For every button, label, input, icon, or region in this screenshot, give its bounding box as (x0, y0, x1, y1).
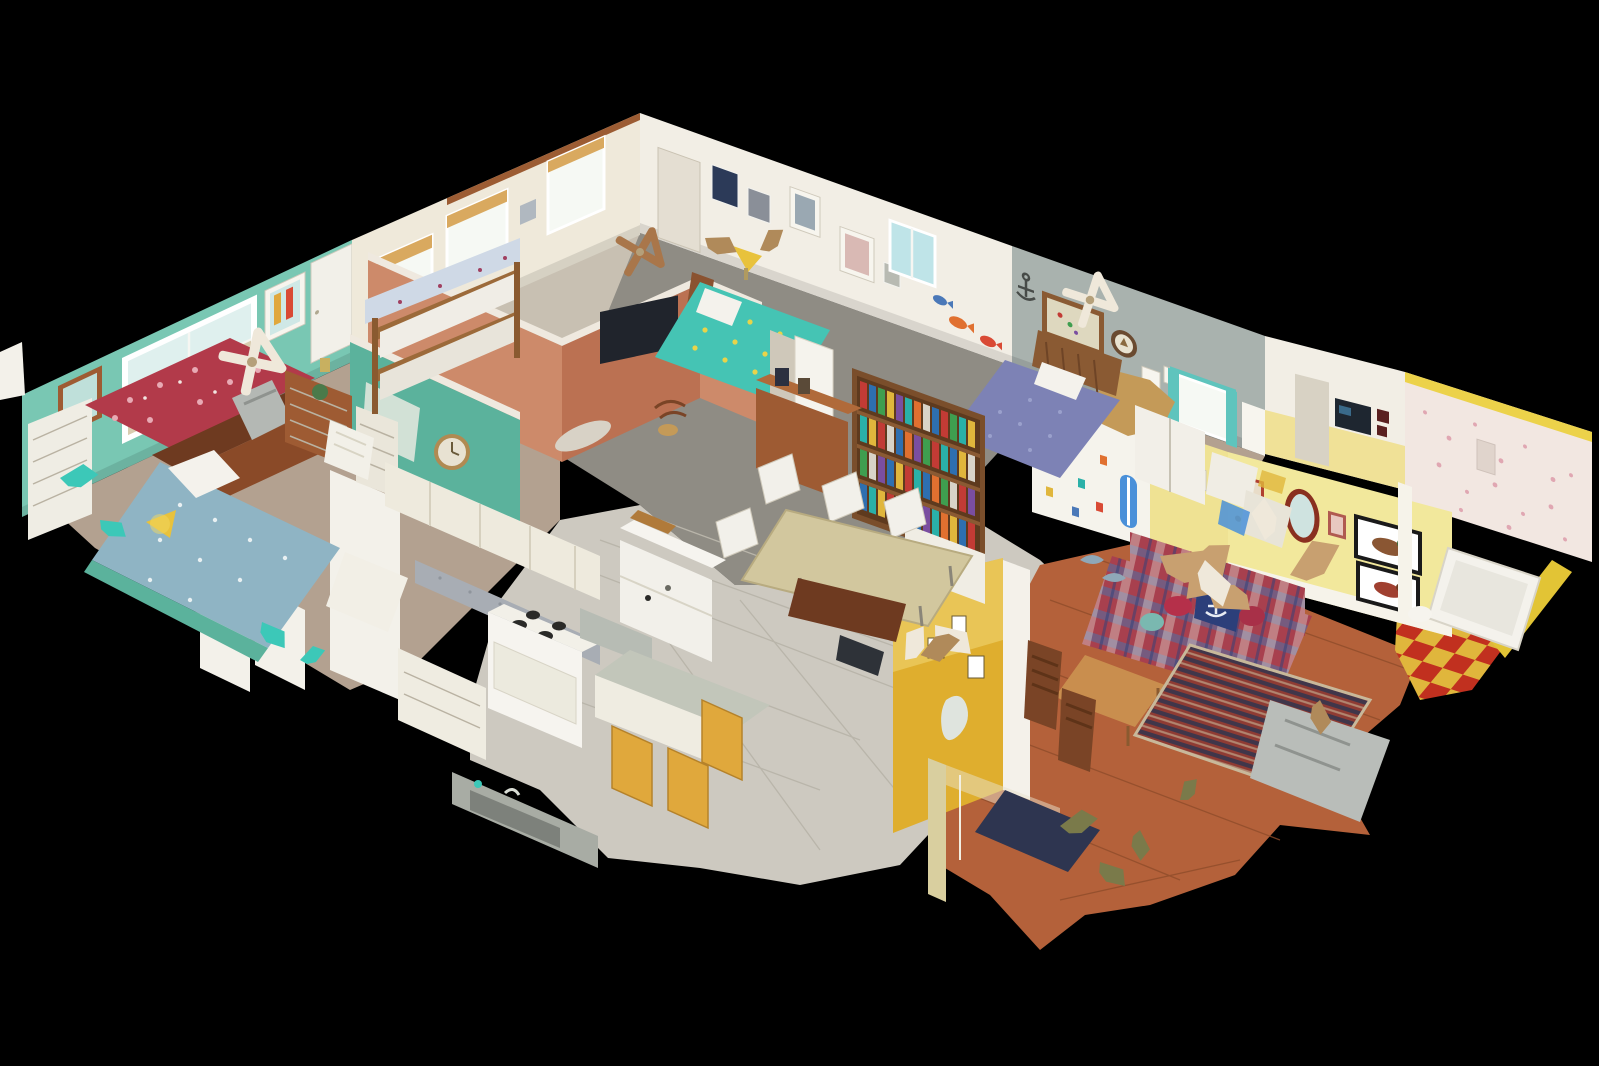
wall-hall-nook (1265, 336, 1405, 490)
teal-pillow (1140, 613, 1164, 631)
bathroom-wall-edge (1398, 482, 1412, 620)
toilet (1408, 606, 1432, 622)
console-frame (775, 368, 789, 386)
dresser-lamp (320, 358, 330, 372)
red-pillow (1164, 596, 1192, 616)
console-frame (798, 378, 810, 394)
dollhouse-3d-viewport[interactable] (0, 0, 1599, 1066)
small-frame (968, 656, 984, 678)
basket (658, 424, 678, 436)
bedroom-door (311, 244, 352, 363)
dollhouse-model (0, 0, 1599, 1066)
wall-niche (1477, 439, 1495, 475)
door-opening (1295, 374, 1329, 467)
doorway (658, 147, 700, 252)
lower-cabinets (398, 648, 486, 760)
potted-plant (312, 384, 328, 400)
bright-door (1242, 402, 1265, 456)
